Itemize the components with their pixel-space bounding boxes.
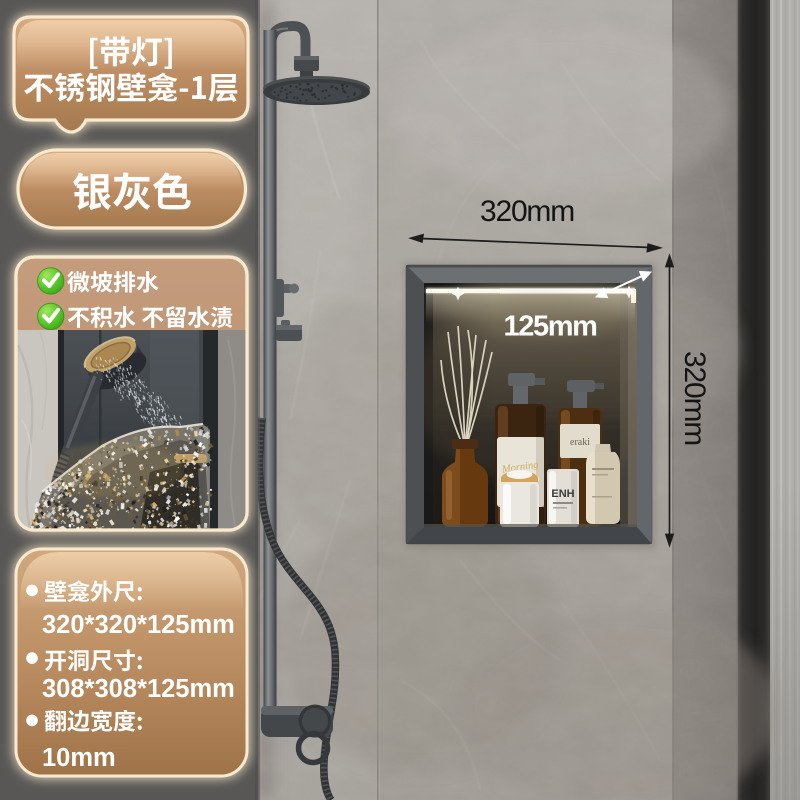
- svg-text:320mm: 320mm: [480, 195, 574, 228]
- svg-text:125mm: 125mm: [504, 311, 597, 343]
- svg-text:ENH: ENH: [551, 488, 574, 500]
- svg-text:320mm: 320mm: [678, 351, 711, 445]
- svg-text:308*308*125mm: 308*308*125mm: [42, 675, 235, 703]
- svg-text:eraki: eraki: [570, 437, 590, 448]
- svg-text:10mm: 10mm: [42, 744, 116, 772]
- svg-text:320*320*125mm: 320*320*125mm: [42, 611, 235, 639]
